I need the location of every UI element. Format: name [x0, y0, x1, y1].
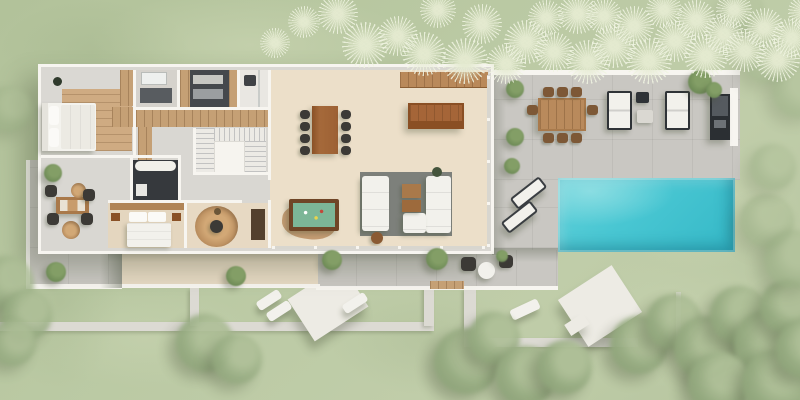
- sink: [714, 120, 726, 128]
- shrub: [504, 158, 520, 174]
- shrub: [506, 128, 524, 146]
- villa-aerial-render: [0, 0, 800, 400]
- dining-chair: [341, 110, 351, 119]
- daybed: [665, 91, 690, 130]
- shrub: [46, 262, 66, 282]
- outdoor-dining-chair: [543, 87, 554, 97]
- table-top: [540, 100, 584, 129]
- outdoor-dining-chair: [571, 87, 582, 97]
- shrub: [226, 266, 246, 286]
- dining-chair: [300, 134, 310, 143]
- counter-top: [712, 96, 728, 116]
- bbq-outdoor-kitchen: [710, 94, 730, 140]
- patio-chair: [47, 213, 59, 225]
- patio-chair: [45, 185, 57, 197]
- dining-chair: [341, 122, 351, 131]
- outdoor-dining-chair: [557, 133, 568, 143]
- outdoor-dining-table: [538, 98, 586, 131]
- ottoman: [637, 110, 653, 123]
- dining-chair: [341, 146, 351, 155]
- furniture: [0, 0, 800, 400]
- shrub: [322, 250, 342, 270]
- patio-chair: [81, 213, 93, 225]
- side-table: [636, 92, 649, 103]
- outdoor-dining-chair: [571, 133, 582, 143]
- privacy-wall: [730, 88, 738, 146]
- outdoor-dining-chair: [527, 105, 538, 115]
- dining-chair: [300, 110, 310, 119]
- shrub: [506, 80, 524, 98]
- wooden-mat: [430, 281, 464, 289]
- outdoor-dining-chair: [587, 105, 598, 115]
- shrub: [426, 248, 448, 270]
- outdoor-dining-chair: [557, 87, 568, 97]
- daybed: [607, 91, 632, 130]
- outdoor-chair: [461, 257, 476, 271]
- round-rug: [62, 221, 80, 239]
- table-runner: [60, 200, 85, 211]
- shrub: [706, 82, 722, 98]
- outdoor-dining-chair: [543, 133, 554, 143]
- dining-chair: [341, 134, 351, 143]
- shrub: [44, 164, 62, 182]
- patio-chair: [83, 189, 95, 201]
- round-table: [478, 262, 495, 279]
- dining-chair: [300, 122, 310, 131]
- shrub: [496, 250, 508, 262]
- dining-chair: [300, 146, 310, 155]
